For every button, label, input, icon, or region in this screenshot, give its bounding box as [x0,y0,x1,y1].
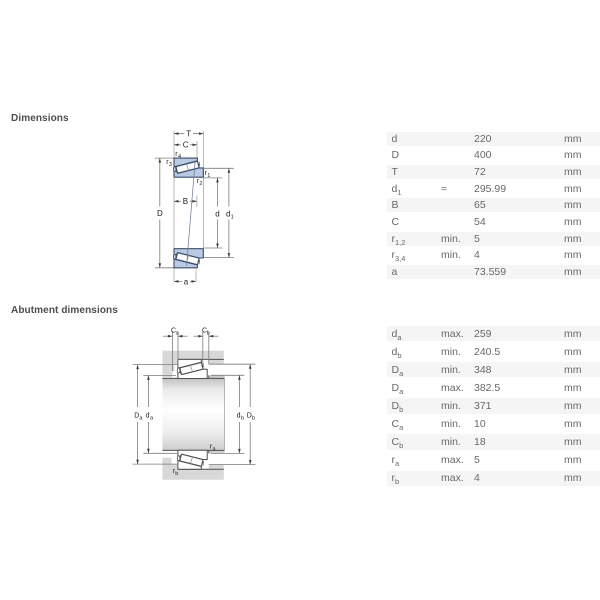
svg-text:a: a [139,416,143,422]
svg-text:3: 3 [169,162,172,168]
svg-text:C: C [183,141,189,150]
svg-text:d: d [237,413,241,420]
svg-text:b: b [175,471,178,477]
svg-text:a: a [150,416,154,422]
svg-text:1: 1 [231,215,234,221]
svg-text:b: b [252,416,255,422]
svg-text:b: b [207,330,210,336]
svg-text:D: D [157,209,163,218]
svg-text:b: b [241,416,244,422]
svg-text:1: 1 [207,173,210,179]
svg-text:d: d [146,413,150,420]
svg-text:d: d [215,209,219,218]
svg-text:a: a [176,330,180,336]
svg-text:B: B [183,197,188,206]
svg-text:a: a [184,277,189,286]
svg-text:2: 2 [199,181,202,187]
svg-text:4: 4 [178,154,181,160]
svg-text:T: T [186,129,191,138]
